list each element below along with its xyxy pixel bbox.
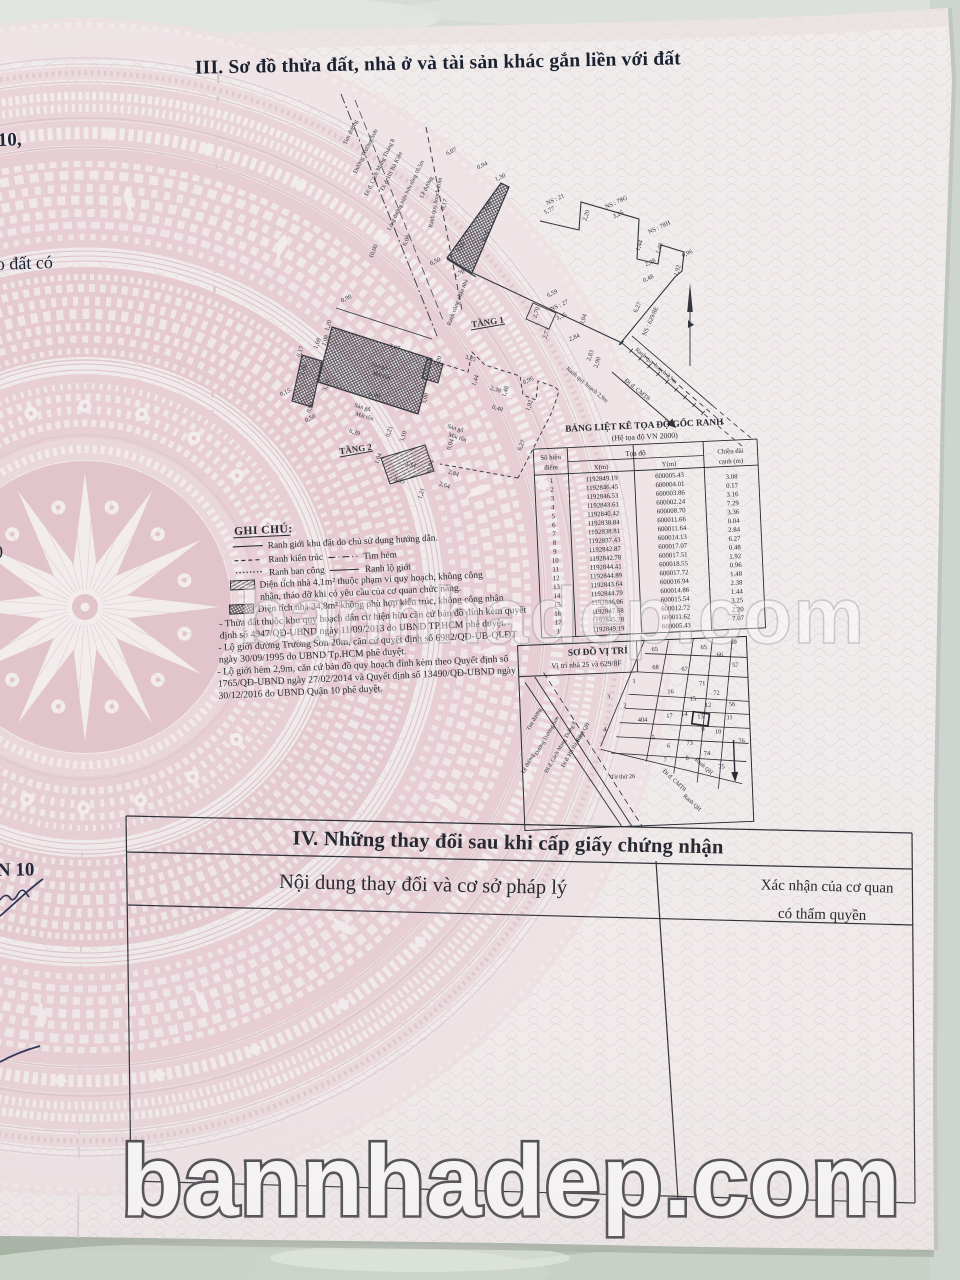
svg-text:600014.13: 600014.13 <box>658 534 688 542</box>
svg-text:Tim hẻm: Tim hẻm <box>363 550 398 562</box>
svg-text:600018.55: 600018.55 <box>659 560 689 568</box>
svg-text:0: 0 <box>0 542 3 562</box>
svg-text:3.16: 3.16 <box>726 491 739 499</box>
svg-text:1192838.84: 1192838.84 <box>587 519 620 527</box>
svg-text:1192842.78: 1192842.78 <box>589 555 622 563</box>
svg-text:2.84: 2.84 <box>728 526 741 534</box>
svg-text:1192849.19: 1192849.19 <box>585 475 618 483</box>
svg-text:600003.86: 600003.86 <box>656 490 686 498</box>
svg-text:600005.43: 600005.43 <box>655 472 685 480</box>
svg-text:10,: 10, <box>0 129 22 151</box>
svg-text:1192846.45: 1192846.45 <box>586 484 619 492</box>
svg-text:600017.07: 600017.07 <box>658 543 688 551</box>
svg-text:Y(m): Y(m) <box>662 461 677 469</box>
svg-text:1192842.87: 1192842.87 <box>589 546 622 554</box>
svg-text:0.04: 0.04 <box>728 518 741 526</box>
svg-text:cạnh (m): cạnh (m) <box>719 458 744 466</box>
svg-text:o đất có: o đất có <box>0 252 53 274</box>
svg-text:600008.70: 600008.70 <box>657 507 687 515</box>
svg-text:Chiều dài: Chiều dài <box>717 448 744 456</box>
svg-text:0.48: 0.48 <box>729 544 742 552</box>
svg-text:điểm: điểm <box>544 464 559 472</box>
svg-text:6.27: 6.27 <box>728 535 741 543</box>
svg-text:3.36: 3.36 <box>727 509 740 517</box>
svg-text:600011.64: 600011.64 <box>658 525 688 533</box>
svg-text:1192840.42: 1192840.42 <box>587 510 620 518</box>
svg-text:600011.66: 600011.66 <box>657 516 687 524</box>
svg-text:0.17: 0.17 <box>726 482 739 490</box>
svg-text:600004.01: 600004.01 <box>655 481 684 489</box>
svg-text:3.08: 3.08 <box>726 473 739 481</box>
svg-text:600017.51: 600017.51 <box>659 552 688 560</box>
svg-text:1192838.81: 1192838.81 <box>588 528 620 536</box>
svg-text:1192846.53: 1192846.53 <box>586 493 619 501</box>
svg-text:600002.24: 600002.24 <box>656 498 686 506</box>
svg-text:Tọa độ: Tọa độ <box>625 449 646 458</box>
svg-text:0.96: 0.96 <box>730 562 743 570</box>
svg-text:1192843.61: 1192843.61 <box>587 501 619 509</box>
svg-text:1: 1 <box>550 478 554 485</box>
svg-text:10: 10 <box>552 557 560 564</box>
svg-text:X(m): X(m) <box>594 464 609 472</box>
svg-text:1.92: 1.92 <box>729 553 742 561</box>
svg-text:Số hiệu: Số hiệu <box>540 454 561 462</box>
svg-text:1192837.43: 1192837.43 <box>588 537 621 545</box>
svg-text:7.29: 7.29 <box>727 500 740 508</box>
